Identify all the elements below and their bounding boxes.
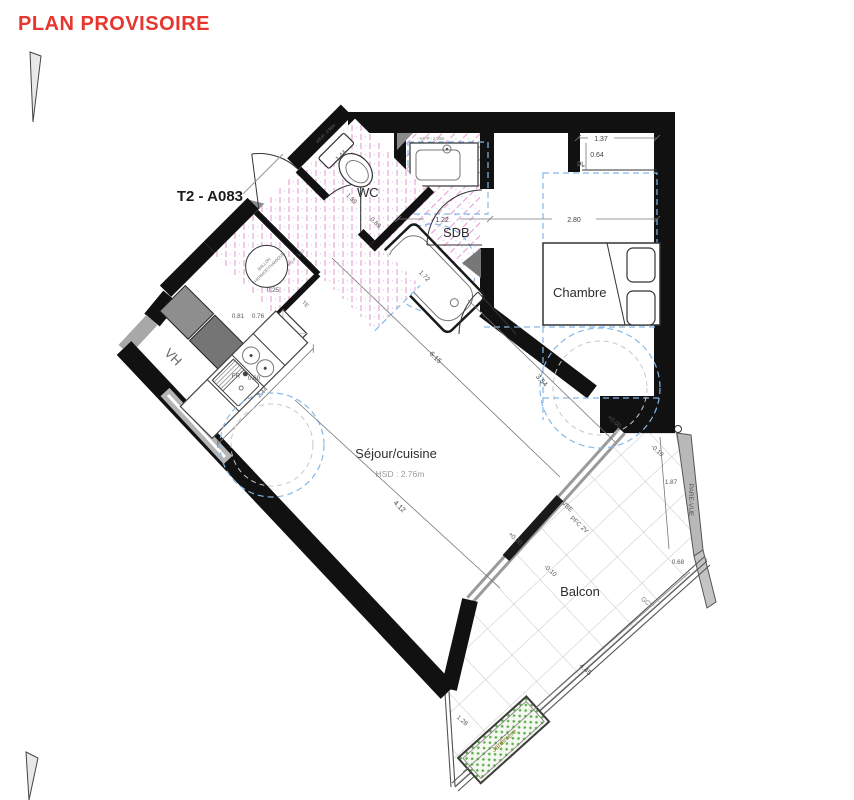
unit-label: T2 - A083 bbox=[177, 188, 243, 205]
pare-vue-label: PARE-VUE bbox=[687, 484, 694, 517]
dim-pl-width: 1.37 bbox=[594, 136, 608, 143]
floor-plan-page: PLAN PROVISOIRE T2 - A083 Jardinière bbox=[0, 0, 854, 800]
dim-sejour-length: 6.15 bbox=[428, 351, 443, 366]
dim-sejour-width: 4.12 bbox=[392, 500, 407, 515]
note-sdb-height: HS-P : 2.50m bbox=[419, 136, 445, 141]
provisional-stamp: PLAN PROVISOIRE bbox=[18, 13, 210, 35]
dim-sdb-width: 1.22 bbox=[435, 217, 449, 224]
electrical-panel-label: TE bbox=[300, 300, 309, 309]
wall-top bbox=[348, 112, 675, 133]
dim-chambre-width: 2.80 bbox=[567, 217, 581, 224]
sejour-ceiling-height: HSD : 2.76m bbox=[376, 469, 425, 479]
dim-closet-a: 0.25 bbox=[267, 287, 280, 294]
vh-label: VH bbox=[161, 345, 184, 368]
sejour-turning-circle bbox=[220, 393, 324, 497]
dim-closet-c: 0.76 bbox=[252, 313, 265, 320]
railing-post bbox=[675, 426, 682, 433]
room-label-wc: WC bbox=[357, 185, 379, 200]
fridge-label: FR bbox=[232, 373, 241, 380]
dim-balcony-right: 1.87 bbox=[665, 479, 678, 486]
room-label-sdb: SDB bbox=[443, 225, 470, 240]
dim-pl-depth: 0.64 bbox=[590, 152, 604, 159]
room-label-chambre: Chambre bbox=[553, 285, 606, 300]
room-label-sejour: Séjour/cuisine bbox=[355, 446, 437, 461]
pillow bbox=[627, 291, 655, 325]
dim-closet-b: 0.81 bbox=[232, 313, 245, 320]
dim-balcony-corner: 0.68 bbox=[672, 559, 685, 566]
pare-vue-screen-lower bbox=[694, 550, 716, 608]
page-crop-marks bbox=[26, 52, 41, 800]
bed bbox=[543, 243, 660, 325]
floor-plan-svg: PLAN PROVISOIRE T2 - A083 Jardinière bbox=[0, 0, 854, 800]
dim-chain-horizontal: 1.22 2.80 bbox=[395, 216, 660, 224]
pl-label-top: PL bbox=[577, 162, 585, 169]
dim-closet-top: 1.37 0.64 PL bbox=[575, 135, 660, 170]
dim-fridge: 0.60 bbox=[248, 375, 261, 382]
pillow bbox=[627, 248, 655, 282]
washbasin bbox=[410, 143, 478, 186]
room-label-balcon: Balcon bbox=[560, 584, 600, 599]
